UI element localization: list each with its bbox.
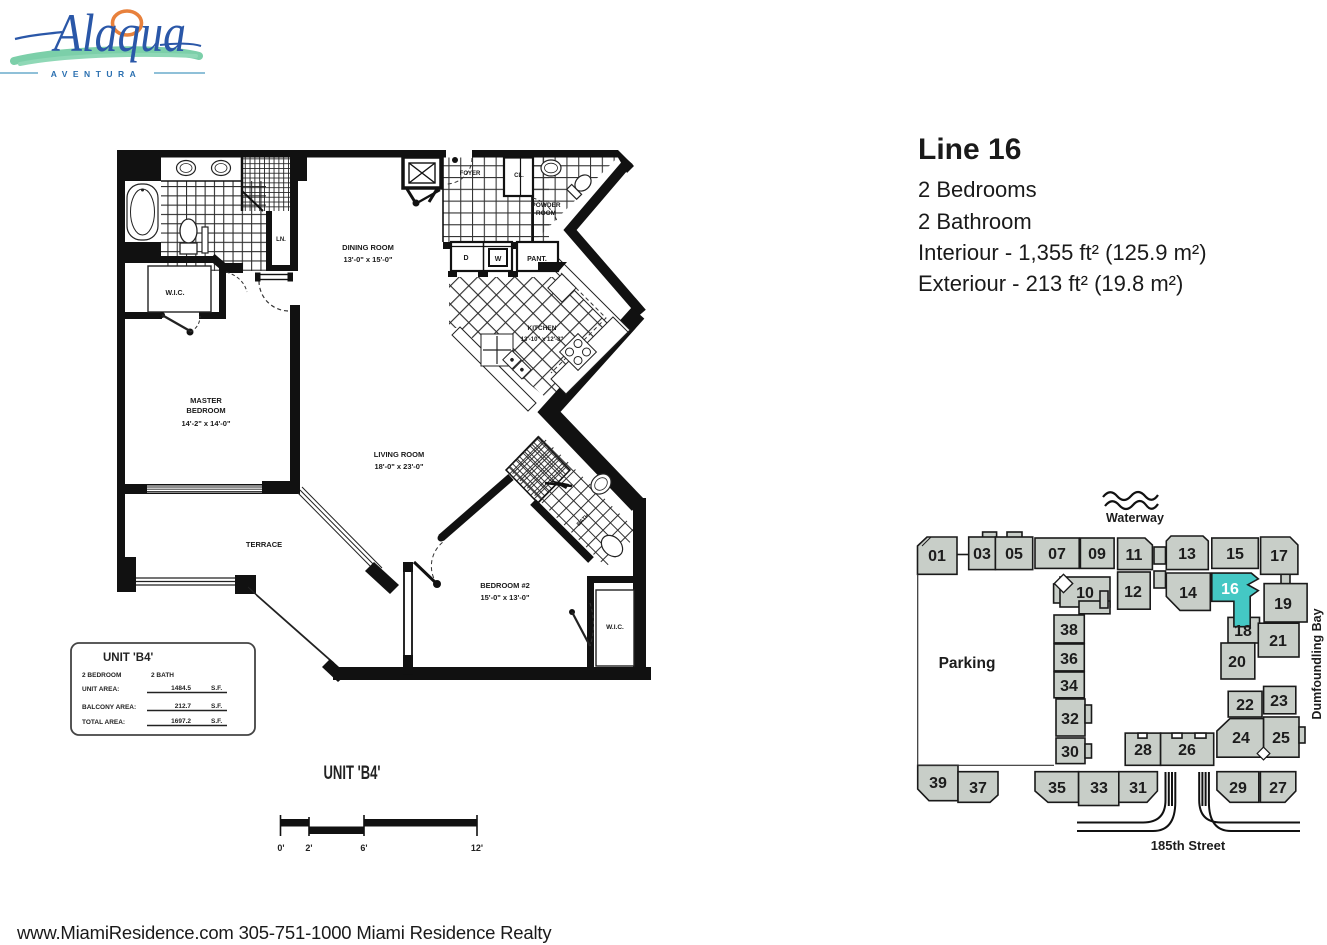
svg-text:34: 34	[1060, 678, 1078, 695]
svg-text:31: 31	[1129, 780, 1147, 797]
svg-text:UNIT 'B4': UNIT 'B4'	[324, 763, 381, 784]
svg-text:DINING ROOM: DINING ROOM	[342, 243, 394, 252]
svg-text:UNIT AREA:: UNIT AREA:	[82, 686, 119, 693]
svg-text:23: 23	[1270, 693, 1288, 710]
svg-text:13: 13	[1178, 546, 1196, 563]
svg-text:TOTAL AREA:: TOTAL AREA:	[82, 719, 125, 726]
svg-text:W.I.C.: W.I.C.	[165, 290, 184, 297]
svg-text:LIVING ROOM: LIVING ROOM	[374, 450, 424, 459]
svg-text:W.I.C.: W.I.C.	[606, 624, 624, 631]
svg-text:22: 22	[1236, 697, 1254, 714]
svg-text:15: 15	[1226, 546, 1244, 563]
svg-text:12': 12'	[471, 843, 483, 853]
svg-text:MASTER: MASTER	[190, 396, 222, 405]
svg-text:Waterway: Waterway	[1106, 511, 1164, 525]
svg-text:UNIT 'B4': UNIT 'B4'	[103, 652, 153, 664]
svg-text:26: 26	[1178, 742, 1196, 759]
svg-text:13'-10" x 12'-8": 13'-10" x 12'-8"	[521, 337, 564, 343]
svg-text:185th Street: 185th Street	[1151, 838, 1226, 853]
svg-text:S.F.: S.F.	[211, 703, 222, 710]
svg-text:01: 01	[928, 548, 946, 565]
svg-text:09: 09	[1088, 546, 1106, 563]
svg-text:Parking: Parking	[939, 655, 996, 672]
svg-text:2 BATH: 2 BATH	[151, 672, 174, 679]
svg-text:07: 07	[1048, 546, 1066, 563]
svg-text:17: 17	[1270, 548, 1288, 565]
svg-text:20: 20	[1228, 654, 1246, 671]
svg-text:11: 11	[1126, 547, 1143, 564]
svg-text:29: 29	[1229, 780, 1247, 797]
svg-text:25: 25	[1272, 730, 1290, 747]
svg-text:0': 0'	[277, 843, 284, 853]
svg-text:1697.2: 1697.2	[171, 718, 191, 725]
svg-text:21: 21	[1269, 633, 1287, 650]
svg-text:19: 19	[1274, 596, 1292, 613]
svg-text:212.7: 212.7	[175, 703, 192, 710]
svg-text:6': 6'	[360, 843, 367, 853]
svg-text:TERRACE: TERRACE	[246, 540, 282, 549]
svg-text:D: D	[463, 255, 468, 262]
svg-text:12: 12	[1124, 584, 1142, 601]
svg-text:1484.5: 1484.5	[171, 685, 191, 692]
svg-text:10: 10	[1076, 585, 1094, 602]
svg-text:13'-0" x 15'-0": 13'-0" x 15'-0"	[343, 255, 392, 264]
svg-text:BALCONY AREA:: BALCONY AREA:	[82, 704, 136, 711]
svg-text:35: 35	[1048, 780, 1066, 797]
svg-text:14'-2" x 14'-0": 14'-2" x 14'-0"	[181, 419, 230, 428]
svg-text:POWDER: POWDER	[531, 202, 561, 209]
svg-text:18: 18	[1234, 623, 1252, 640]
svg-text:18'-0" x 23'-0": 18'-0" x 23'-0"	[374, 462, 423, 471]
svg-text:ROOM: ROOM	[536, 210, 556, 217]
svg-text:Alaqua: Alaqua	[51, 3, 186, 63]
svg-text:15'-0" x 13'-0": 15'-0" x 13'-0"	[480, 593, 529, 602]
svg-text:39: 39	[929, 775, 947, 792]
svg-text:37: 37	[969, 780, 987, 797]
svg-text:CL.: CL.	[514, 173, 524, 179]
svg-text:32: 32	[1061, 711, 1079, 728]
svg-text:2': 2'	[305, 843, 312, 853]
svg-text:28: 28	[1134, 742, 1152, 759]
svg-text:LN.: LN.	[276, 237, 286, 243]
svg-text:27: 27	[1269, 780, 1287, 797]
svg-text:16: 16	[1221, 581, 1239, 598]
svg-text:BEDROOM #2: BEDROOM #2	[480, 581, 530, 590]
svg-text:2 BEDROOM: 2 BEDROOM	[82, 672, 121, 679]
svg-text:BEDROOM: BEDROOM	[186, 406, 225, 415]
svg-text:14: 14	[1179, 585, 1197, 602]
svg-text:38: 38	[1060, 622, 1078, 639]
svg-text:03: 03	[973, 546, 991, 563]
svg-text:PANT.: PANT.	[527, 256, 547, 263]
svg-text:S.F.: S.F.	[211, 718, 222, 725]
svg-text:05: 05	[1005, 546, 1023, 563]
svg-text:33: 33	[1090, 780, 1108, 797]
svg-text:30: 30	[1061, 744, 1079, 761]
svg-text:Dumfoundling Bay: Dumfoundling Bay	[1310, 608, 1324, 719]
svg-text:24: 24	[1232, 730, 1250, 747]
svg-text:KITCHEN: KITCHEN	[528, 325, 557, 332]
svg-text:FOYER: FOYER	[460, 171, 481, 177]
svg-text:W: W	[495, 256, 502, 263]
svg-text:AVENTURA: AVENTURA	[51, 69, 142, 79]
svg-text:S.F.: S.F.	[211, 685, 222, 692]
svg-text:36: 36	[1060, 651, 1078, 668]
